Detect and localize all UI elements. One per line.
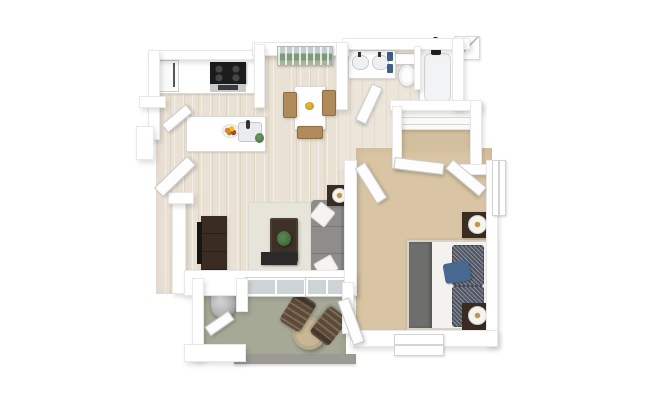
wall-storage-right: [236, 278, 248, 312]
sink-left: [352, 55, 369, 70]
vanity-faucet-right: [378, 52, 381, 57]
nightstand-lamp-top: [468, 215, 487, 234]
balcony-edge: [234, 354, 356, 364]
wall-closet-right: [470, 100, 482, 170]
wall-dining-hall: [336, 42, 348, 110]
sink-faucet: [246, 120, 250, 129]
wall-entry-stub-a: [139, 96, 166, 108]
dining-chair-left: [283, 92, 297, 118]
wall-bathroom-closet: [390, 100, 482, 111]
tv-panel: [197, 222, 202, 264]
wall-top-kitchen: [148, 50, 260, 60]
fruit-bowl: [222, 124, 239, 138]
wall-entry-stub-b: [136, 126, 154, 160]
dining-chair-bottom: [297, 126, 323, 139]
wall-top-bathroom: [342, 38, 470, 50]
living-balcony-window-1: [246, 278, 306, 296]
wall-living-bedroom: [344, 160, 357, 296]
refrigerator: [159, 60, 179, 92]
bed-foot-runner: [409, 242, 432, 328]
wall-art-landscape: [277, 46, 333, 66]
oven-window: [218, 85, 238, 90]
range-cooktop: [210, 62, 246, 84]
island-plant: [255, 133, 264, 143]
blue-towels-2: [387, 64, 393, 73]
blue-towels-1: [387, 52, 393, 61]
bedroom-rear-window: [394, 334, 444, 356]
floor-plan-canvas: [0, 0, 652, 416]
bathtub-basin: [424, 53, 451, 102]
table-bowl: [305, 102, 314, 110]
vanity-faucet-left: [358, 52, 361, 57]
wall-kitchen-dining-divider: [254, 44, 265, 108]
nightstand-lamp-bottom: [468, 306, 487, 325]
potted-plant: [277, 231, 291, 246]
fireplace-media-panel: [261, 252, 297, 265]
dining-chair-right: [322, 90, 336, 116]
wall-living-stub-top: [168, 192, 194, 204]
tv-console: [201, 216, 227, 270]
bedroom-side-window: [492, 160, 506, 216]
wall-tub-divider: [414, 46, 421, 90]
refrigerator-handle: [173, 63, 175, 87]
wall-storage-corner: [184, 344, 246, 362]
